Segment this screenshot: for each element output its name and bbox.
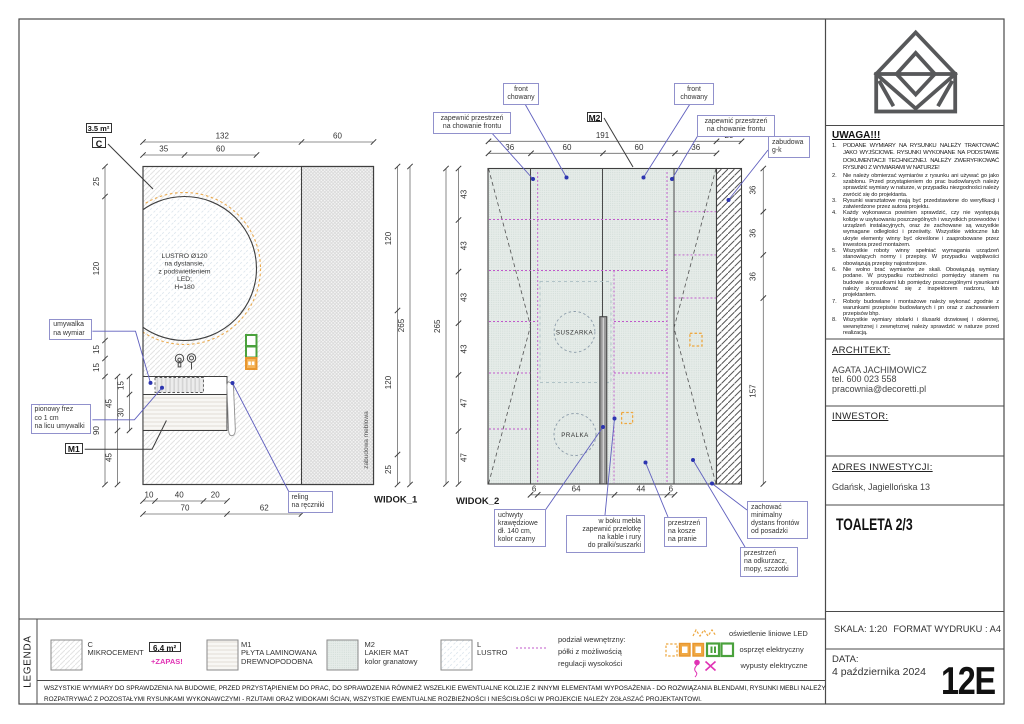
svg-text:36: 36 (749, 272, 758, 281)
svg-text:6: 6 (669, 484, 674, 493)
svg-text:z podświetleniem: z podświetleniem (158, 268, 210, 275)
svg-text:36: 36 (749, 228, 758, 237)
svg-text:20: 20 (211, 491, 220, 500)
svg-text:43: 43 (460, 292, 469, 301)
svg-text:45: 45 (105, 453, 114, 462)
svg-text:na dystansie,: na dystansie, (164, 261, 204, 268)
svg-text:15: 15 (117, 381, 126, 390)
svg-text:15: 15 (92, 363, 101, 372)
svg-text:60: 60 (216, 145, 225, 154)
svg-text:60: 60 (563, 143, 572, 152)
svg-text:120: 120 (384, 375, 393, 389)
svg-text:H=180: H=180 (174, 284, 194, 291)
svg-text:43: 43 (460, 241, 469, 250)
svg-text:PRALKA: PRALKA (561, 432, 589, 439)
svg-text:SUSZARKA: SUSZARKA (556, 329, 594, 336)
svg-text:45: 45 (105, 399, 114, 408)
svg-text:64: 64 (572, 484, 581, 493)
svg-text:zabudowa meblowa: zabudowa meblowa (363, 411, 370, 469)
svg-text:265: 265 (397, 318, 406, 332)
svg-text:60: 60 (635, 143, 644, 152)
svg-text:25: 25 (384, 465, 393, 474)
svg-text:132: 132 (216, 132, 230, 141)
svg-text:70: 70 (181, 504, 190, 513)
svg-text:90: 90 (92, 426, 101, 435)
svg-text:40: 40 (175, 491, 184, 500)
svg-text:191: 191 (596, 131, 610, 140)
svg-text:265: 265 (433, 319, 442, 333)
svg-text:157: 157 (749, 384, 758, 398)
svg-text:44: 44 (636, 484, 645, 493)
svg-text:36: 36 (505, 143, 514, 152)
svg-text:36: 36 (749, 185, 758, 194)
svg-text:6: 6 (532, 484, 537, 493)
svg-text:43: 43 (460, 344, 469, 353)
svg-text:WIDOK_1: WIDOK_1 (374, 495, 418, 506)
svg-text:120: 120 (384, 231, 393, 245)
svg-text:43: 43 (460, 189, 469, 198)
svg-text:LED;: LED; (177, 276, 192, 283)
svg-text:10: 10 (145, 491, 154, 500)
svg-text:47: 47 (460, 398, 469, 407)
svg-text:LUSTRO Ø120: LUSTRO Ø120 (161, 253, 207, 260)
svg-text:30: 30 (117, 408, 126, 417)
svg-text:15: 15 (92, 345, 101, 354)
svg-text:35: 35 (159, 145, 168, 154)
svg-text:25: 25 (92, 177, 101, 186)
svg-text:47: 47 (460, 453, 469, 462)
svg-text:120: 120 (92, 261, 101, 275)
svg-text:62: 62 (260, 504, 269, 513)
svg-text:WIDOK_2: WIDOK_2 (456, 496, 499, 507)
svg-text:60: 60 (333, 132, 342, 141)
